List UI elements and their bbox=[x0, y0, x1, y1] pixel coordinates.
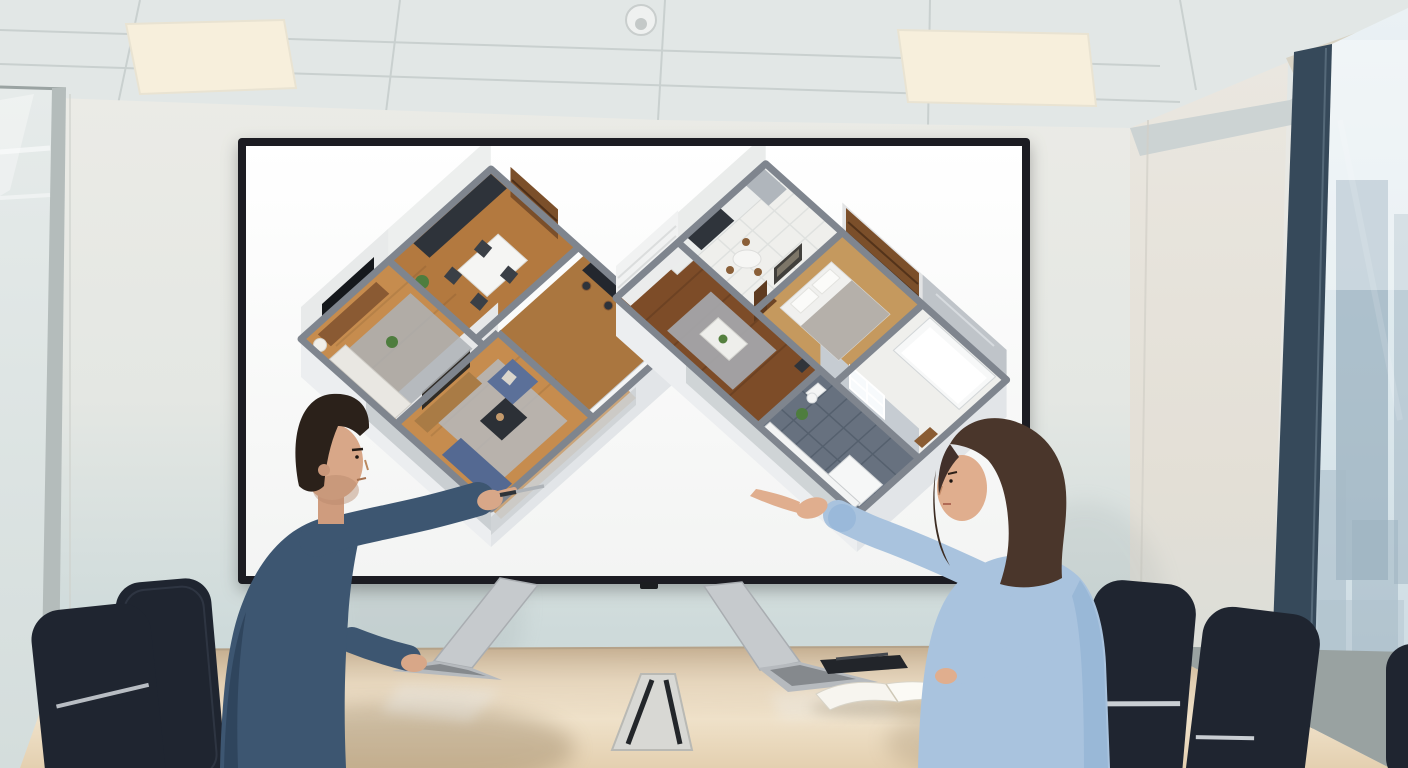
smoke-detector bbox=[626, 5, 656, 35]
chair-left-1 bbox=[29, 600, 171, 768]
conference-room-scene: conference-room-floor-plan-review bbox=[0, 0, 1408, 768]
light-panel-left bbox=[126, 20, 296, 94]
plant-lounge bbox=[386, 336, 398, 348]
table-decor bbox=[496, 413, 504, 421]
man-eye bbox=[355, 455, 359, 459]
man-ear bbox=[318, 464, 330, 476]
man-resting-hand bbox=[401, 654, 427, 672]
chair-right-3-partial bbox=[1386, 644, 1408, 768]
plant-bathroom bbox=[796, 408, 808, 420]
round-table bbox=[733, 250, 761, 268]
hall-table-plant bbox=[719, 335, 728, 344]
woman-cuff bbox=[828, 504, 856, 532]
man-resting-arm bbox=[352, 640, 408, 658]
display-logo-notch bbox=[640, 582, 658, 589]
woman-resting-hand bbox=[935, 668, 957, 684]
scene-canvas: conference-room-floor-plan-review bbox=[0, 0, 1408, 768]
woman-eye bbox=[949, 479, 952, 482]
light-panel-right bbox=[898, 30, 1096, 106]
man-eyebrow bbox=[352, 449, 363, 450]
